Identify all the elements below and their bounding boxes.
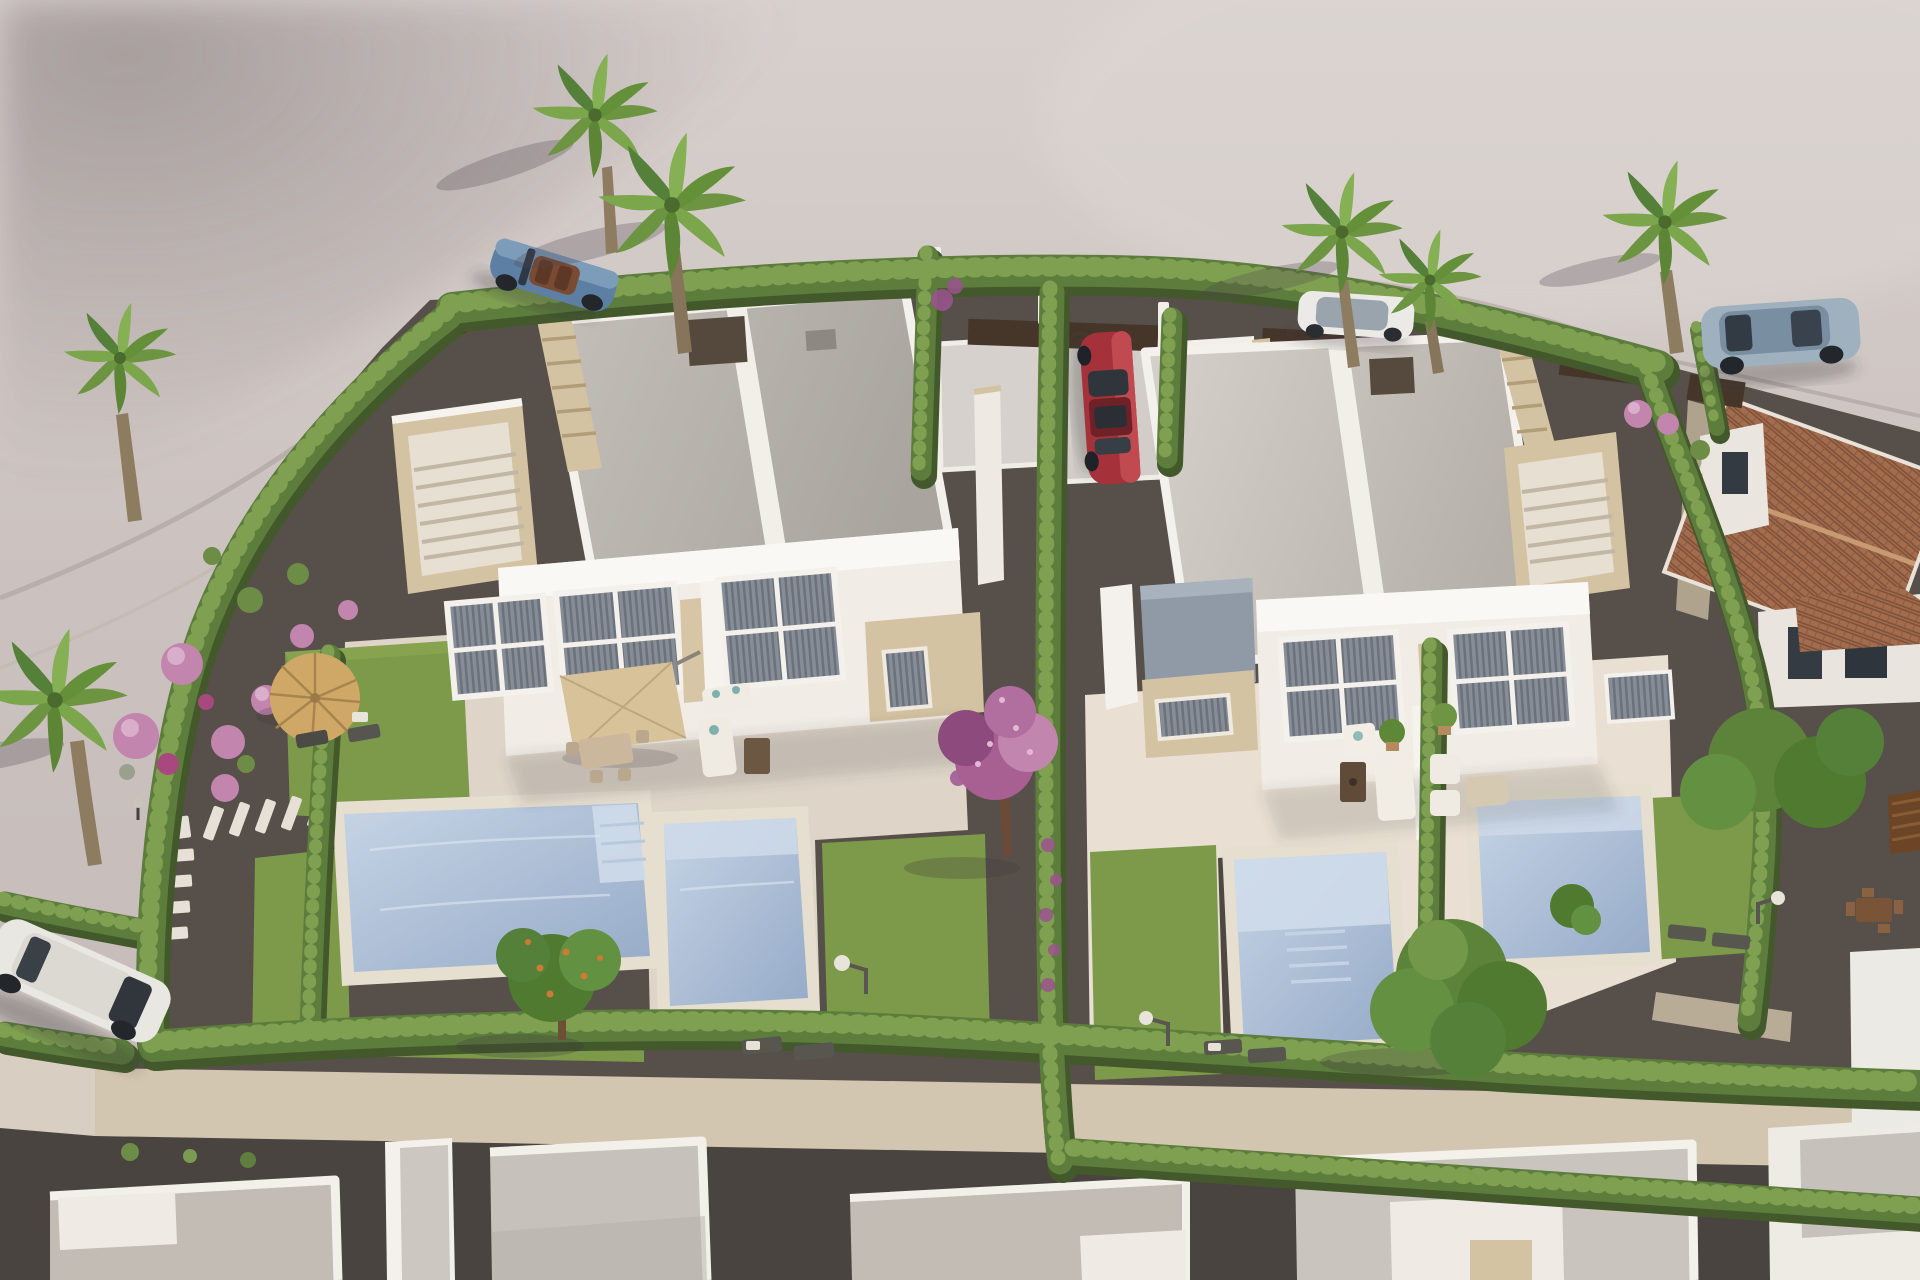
chimney [1369,357,1415,395]
roof-stair-terrace [392,402,538,594]
pool-b [652,806,820,1018]
tiled-roof-small [1795,586,1920,652]
stone-porch [865,612,984,722]
road-shrub [183,1149,197,1163]
window [1450,624,1573,732]
car-glass [1790,309,1822,347]
agave [119,764,135,780]
porch-wall [1100,584,1138,710]
bottom-building-1 [50,1180,338,1280]
window [718,570,843,688]
silver-suv [1694,297,1863,391]
sunroof-glass [1094,405,1127,429]
bottom-building-2 [385,1138,707,1280]
road-shrub [121,1143,139,1161]
windshield [1087,369,1129,398]
aerial-render-scene [0,0,1920,1280]
road-shrub [240,1152,256,1168]
side-wall-stone-cap [974,388,1001,392]
chimney [686,316,747,366]
rear-glass [1094,437,1131,455]
side-wall [974,386,1004,585]
pergola [1888,790,1920,854]
window [447,596,551,698]
porch-low-window [1156,695,1231,739]
porch-door [884,648,931,709]
roof-vent [805,329,836,351]
window-right-end [1606,672,1673,722]
gable-window [1722,452,1748,494]
render-image [0,0,1920,1280]
pool-b-steps [664,818,798,860]
car-glass [1724,314,1752,352]
roof-stair-terrace [1504,432,1630,604]
bottom-building-3 [850,1180,1186,1280]
pool-c-steps [1234,852,1390,932]
